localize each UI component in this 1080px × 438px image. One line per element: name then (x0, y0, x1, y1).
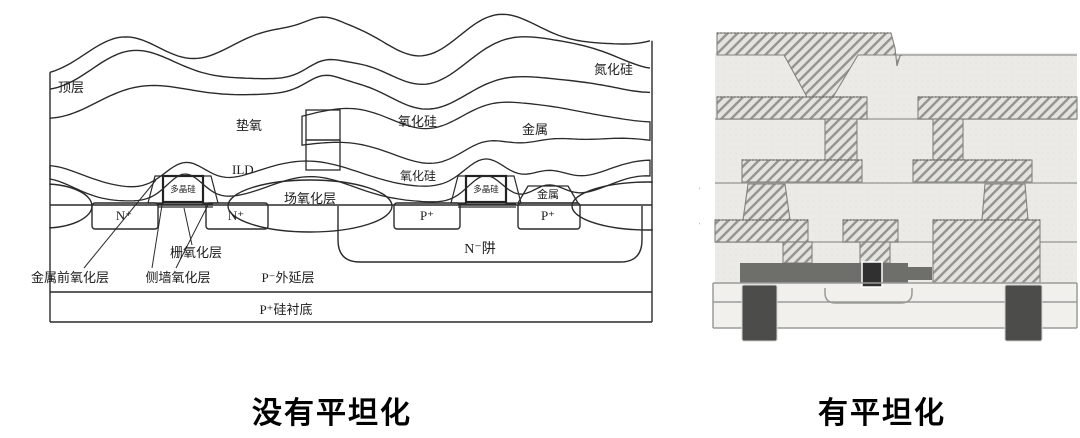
pre-metal-oxide-band (50, 159, 650, 202)
nitride-layer-outline (50, 14, 650, 72)
silicide-bar (740, 263, 908, 283)
via (982, 184, 1028, 220)
label-n-plus-left: N⁺ (116, 208, 132, 223)
label-gate-oxide: 栅氧化层 (170, 245, 222, 260)
via (743, 184, 790, 220)
metal3-segment (717, 97, 867, 119)
metal1-segment (843, 220, 898, 242)
right-cross-section-diagram (680, 0, 1080, 360)
label-metal-upper: 金属 (522, 122, 548, 137)
figure-planarization-comparison: 顶层 垫氧 氮化硅 氧化硅 金属 ILD 氧化硅 多晶硅 多晶硅 金属 场氧化层… (0, 0, 1080, 438)
contact (860, 242, 890, 263)
label-metal-contact: 金属 (537, 187, 559, 201)
isolation-trench (742, 285, 777, 341)
label-n-well: N⁻阱 (464, 241, 496, 257)
label-poly-gate-left: 多晶硅 (170, 184, 196, 194)
caption-planarized: 有平坦化 (772, 388, 992, 432)
label-pad-oxide: 垫氧 (236, 118, 262, 133)
label-p-epi: P⁻外延层 (261, 270, 314, 285)
sidewall-spacer (451, 176, 466, 203)
metal2-segment (913, 160, 1032, 182)
label-silicon-oxide-upper: 氧化硅 (398, 114, 437, 129)
isolation-trench (1005, 285, 1042, 341)
label-p-substrate: P⁺硅衬底 (259, 302, 312, 317)
label-p-plus-left: P⁺ (420, 208, 434, 223)
caption-not-planarized: 没有平坦化 (222, 388, 442, 432)
label-field-oxide: 场氧化层 (284, 191, 336, 206)
label-pre-metal-oxide: 金属前氧化层 (31, 270, 109, 285)
contact (783, 242, 812, 263)
label-sidewall-oxide: 侧墙氧化层 (145, 270, 210, 285)
deep-contact-block (933, 220, 1040, 283)
oxide-layer-outline (50, 75, 650, 118)
silicide-bar-step (908, 267, 932, 280)
label-silicon-oxide-mid: 氧化硅 (400, 169, 436, 183)
field-oxide-center (228, 180, 392, 232)
left-diagram-labels: 顶层 垫氧 氮化硅 氧化硅 金属 ILD 氧化硅 多晶硅 多晶硅 金属 场氧化层… (31, 62, 633, 317)
label-ild: ILD (232, 162, 254, 177)
label-n-plus-right: N⁺ (228, 208, 244, 223)
via (825, 119, 857, 160)
label-poly-gate-right: 多晶硅 (473, 184, 499, 194)
label-silicon-nitride: 氮化硅 (594, 62, 633, 77)
left-clip-mask (0, 0, 49, 365)
via (933, 119, 963, 160)
metal-layer-band (302, 102, 650, 163)
metal3-segment (918, 97, 1077, 119)
metal1-segment (715, 220, 808, 242)
left-cross-section-diagram: 顶层 垫氧 氮化硅 氧化硅 金属 ILD 氧化硅 多晶硅 多晶硅 金属 场氧化层… (0, 0, 700, 365)
metal2-segment (742, 160, 862, 182)
label-p-plus-right: P⁺ (541, 208, 555, 223)
substrate-boundary-lines (50, 292, 652, 322)
label-top-layer: 顶层 (58, 80, 84, 95)
